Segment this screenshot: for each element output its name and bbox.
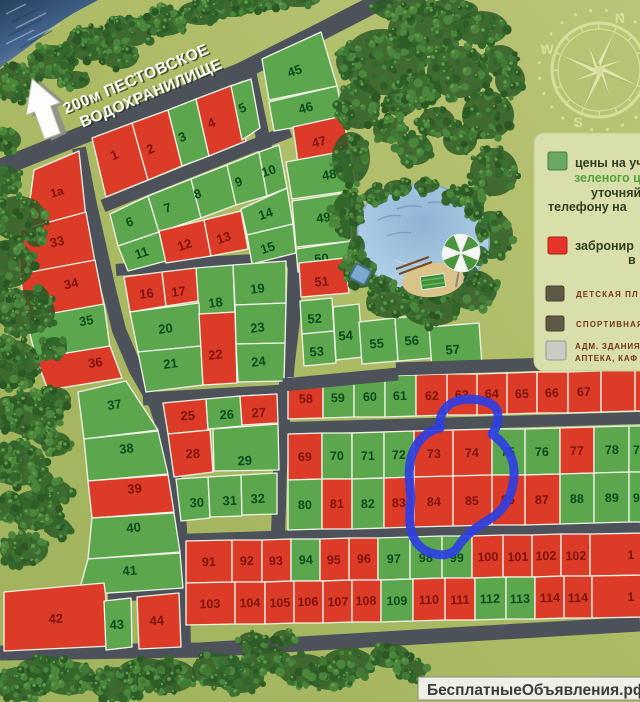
svg-text:70: 70 xyxy=(330,449,344,463)
svg-text:69: 69 xyxy=(298,450,312,464)
svg-text:89: 89 xyxy=(605,491,619,505)
svg-text:105: 105 xyxy=(269,596,290,611)
svg-text:29: 29 xyxy=(237,453,252,469)
svg-text:42: 42 xyxy=(48,611,63,627)
svg-text:114: 114 xyxy=(540,591,561,606)
svg-text:77: 77 xyxy=(570,444,584,458)
svg-text:97: 97 xyxy=(387,552,401,566)
svg-text:79: 79 xyxy=(633,443,640,457)
svg-text:уточняйте: уточняйте xyxy=(591,186,640,200)
svg-text:в: в xyxy=(628,253,636,267)
svg-text:108: 108 xyxy=(355,594,376,609)
svg-text:забронир: забронир xyxy=(575,239,634,253)
svg-text:S: S xyxy=(573,114,582,130)
svg-text:85: 85 xyxy=(465,494,479,508)
svg-text:1: 1 xyxy=(627,548,634,562)
svg-text:110: 110 xyxy=(419,593,440,608)
svg-text:91: 91 xyxy=(202,555,216,569)
svg-text:83: 83 xyxy=(392,496,406,510)
svg-text:1: 1 xyxy=(627,590,634,604)
svg-text:57: 57 xyxy=(445,342,460,358)
svg-text:17: 17 xyxy=(170,283,186,300)
svg-text:37: 37 xyxy=(106,396,122,413)
svg-text:67: 67 xyxy=(577,385,591,399)
svg-text:82: 82 xyxy=(361,497,375,511)
svg-text:39: 39 xyxy=(127,480,143,496)
svg-text:18: 18 xyxy=(207,294,223,311)
svg-text:56: 56 xyxy=(404,333,419,349)
svg-text:52: 52 xyxy=(307,311,322,327)
svg-text:АДМ. ЗДАНИЯ: АДМ. ЗДАНИЯ xyxy=(575,342,640,351)
svg-text:78: 78 xyxy=(605,443,619,457)
svg-text:109: 109 xyxy=(386,594,407,609)
svg-text:БесплатныеОбъявления.рф: БесплатныеОбъявления.рф xyxy=(427,682,640,699)
svg-text:36: 36 xyxy=(87,354,104,371)
svg-text:32: 32 xyxy=(250,491,265,507)
svg-text:38: 38 xyxy=(118,440,134,457)
svg-text:СПОРТИВНАЯ: СПОРТИВНАЯ xyxy=(576,320,640,329)
svg-text:81: 81 xyxy=(330,497,344,511)
svg-text:цены на уч: цены на уч xyxy=(575,156,640,170)
svg-text:106: 106 xyxy=(297,595,318,610)
svg-text:N: N xyxy=(615,10,625,26)
svg-text:92: 92 xyxy=(240,554,254,568)
svg-text:31: 31 xyxy=(222,493,237,509)
svg-text:60: 60 xyxy=(363,390,377,404)
svg-text:65: 65 xyxy=(515,387,529,401)
svg-text:112: 112 xyxy=(480,592,501,607)
svg-text:88: 88 xyxy=(570,492,584,506)
svg-text:16: 16 xyxy=(138,285,154,302)
svg-text:54: 54 xyxy=(338,327,354,343)
svg-text:95: 95 xyxy=(327,553,341,567)
svg-text:41: 41 xyxy=(122,563,137,579)
svg-text:28: 28 xyxy=(185,446,200,462)
svg-text:103: 103 xyxy=(199,597,220,612)
svg-text:W: W xyxy=(540,41,554,57)
svg-text:87: 87 xyxy=(535,493,549,507)
svg-text:84: 84 xyxy=(427,495,441,509)
svg-text:53: 53 xyxy=(309,344,324,360)
svg-text:62: 62 xyxy=(425,389,439,403)
svg-text:74: 74 xyxy=(465,446,479,460)
svg-text:телефону на: телефону на xyxy=(548,200,628,214)
svg-text:113: 113 xyxy=(510,592,531,607)
svg-text:76: 76 xyxy=(535,445,549,459)
svg-text:43: 43 xyxy=(109,617,124,633)
svg-text:24: 24 xyxy=(250,353,267,370)
svg-text:22: 22 xyxy=(207,346,223,363)
svg-text:102: 102 xyxy=(535,549,556,564)
svg-text:90: 90 xyxy=(633,491,640,505)
svg-text:100: 100 xyxy=(477,550,498,565)
svg-text:59: 59 xyxy=(331,391,345,405)
svg-text:71: 71 xyxy=(361,449,375,463)
svg-text:27: 27 xyxy=(251,405,266,421)
svg-text:102: 102 xyxy=(565,549,586,564)
svg-text:23: 23 xyxy=(249,319,265,336)
svg-text:72: 72 xyxy=(392,448,406,462)
svg-text:44: 44 xyxy=(149,613,165,629)
svg-text:АПТЕКА, КАФ: АПТЕКА, КАФ xyxy=(575,354,638,363)
svg-text:101: 101 xyxy=(507,550,528,565)
svg-text:66: 66 xyxy=(545,386,559,400)
svg-text:40: 40 xyxy=(126,519,142,535)
svg-text:94: 94 xyxy=(299,553,313,567)
svg-text:58: 58 xyxy=(299,392,313,406)
svg-text:96: 96 xyxy=(357,552,371,566)
svg-text:93: 93 xyxy=(269,554,283,568)
svg-text:51: 51 xyxy=(314,274,329,290)
svg-text:зеленого ц: зеленого ц xyxy=(574,171,640,185)
svg-text:55: 55 xyxy=(369,336,384,352)
svg-text:26: 26 xyxy=(219,407,234,423)
svg-text:80: 80 xyxy=(298,498,312,512)
svg-text:20: 20 xyxy=(157,320,173,337)
svg-text:25: 25 xyxy=(180,408,195,424)
svg-text:114: 114 xyxy=(568,591,589,606)
svg-text:73: 73 xyxy=(427,447,441,461)
svg-text:61: 61 xyxy=(393,389,407,403)
svg-text:21: 21 xyxy=(162,355,178,372)
svg-text:107: 107 xyxy=(327,595,348,610)
svg-text:30: 30 xyxy=(189,495,204,511)
svg-text:35: 35 xyxy=(78,312,95,329)
svg-text:104: 104 xyxy=(239,596,260,611)
svg-text:19: 19 xyxy=(249,280,265,297)
svg-text:111: 111 xyxy=(450,593,470,608)
svg-text:ДЕТСКАЯ ПЛ: ДЕТСКАЯ ПЛ xyxy=(576,290,639,299)
